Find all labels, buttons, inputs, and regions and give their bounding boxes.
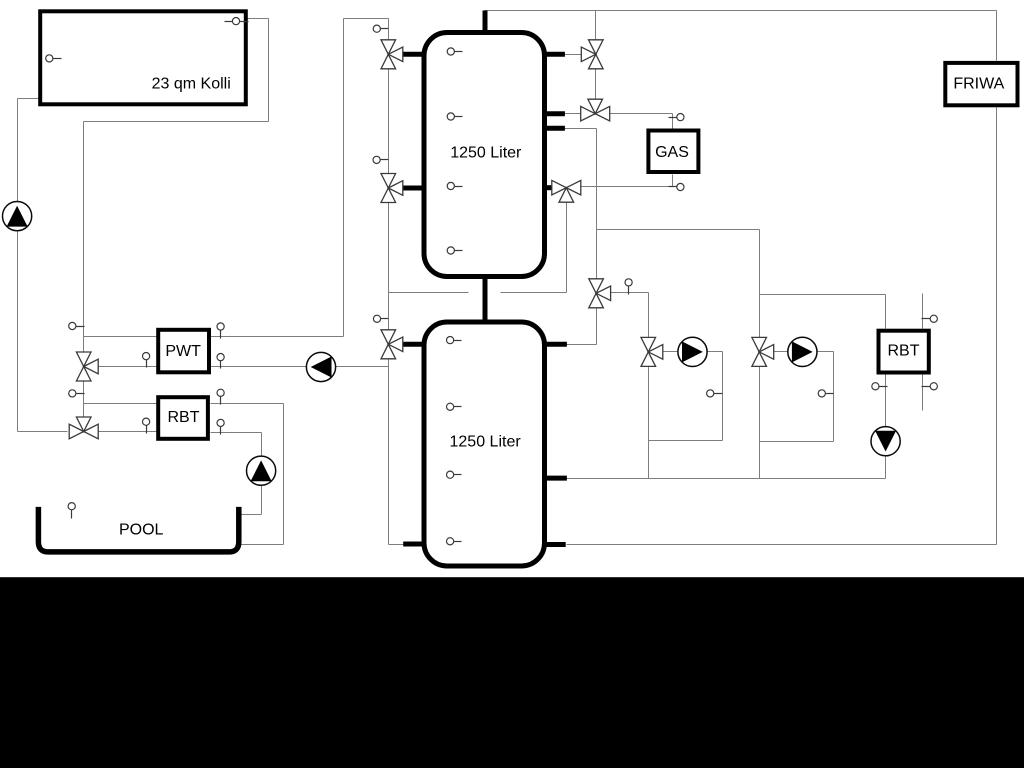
svg-text:PWT: PWT: [165, 343, 201, 360]
svg-text:GAS: GAS: [655, 144, 689, 161]
svg-text:RBT: RBT: [168, 409, 200, 426]
svg-text:POOL: POOL: [119, 522, 164, 539]
svg-text:23 qm Kolli: 23 qm Kolli: [152, 76, 231, 93]
svg-text:FRIWA: FRIWA: [953, 76, 1004, 93]
svg-text:1250 Liter: 1250 Liter: [450, 145, 522, 162]
svg-text:RBT: RBT: [888, 343, 920, 360]
svg-text:1250 Liter: 1250 Liter: [450, 434, 522, 451]
